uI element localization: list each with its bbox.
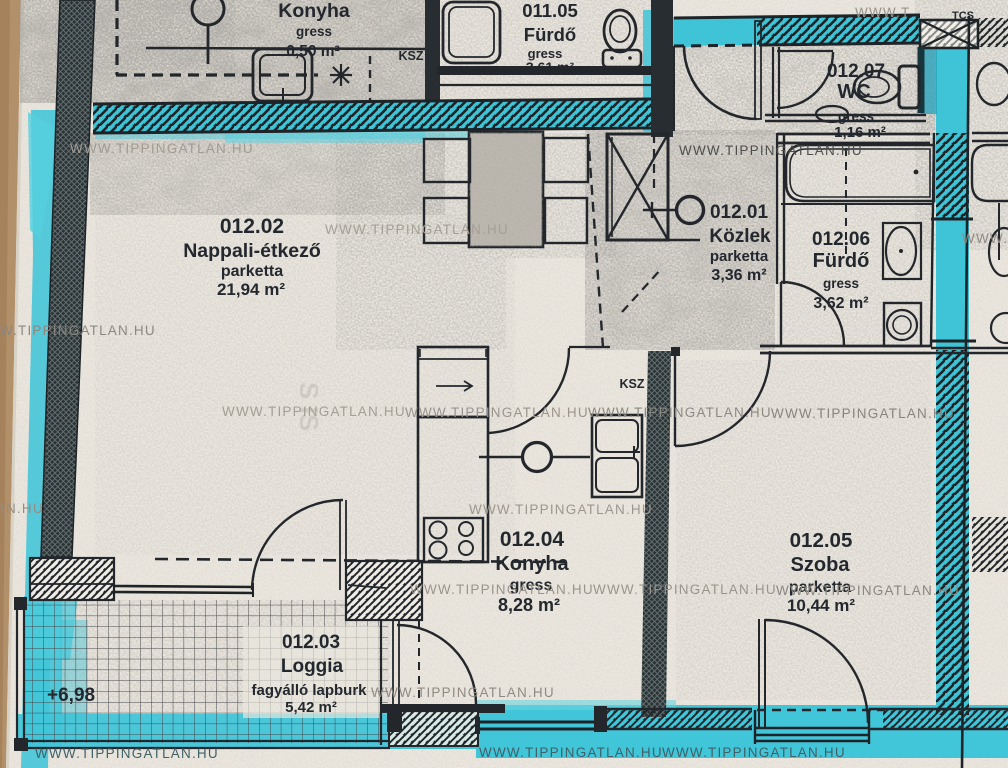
svg-text:KSZ: KSZ: [620, 377, 645, 391]
svg-text:WWW.TIPPINGATLAN.HU: WWW.TIPPINGATLAN.HU: [593, 582, 777, 597]
svg-text:Konyha: Konyha: [495, 553, 569, 575]
svg-text:parketta: parketta: [710, 248, 769, 265]
svg-text:012.06: 012.06: [812, 229, 870, 250]
svg-text:gress: gress: [823, 276, 859, 291]
svg-text:5,42 m²: 5,42 m²: [285, 699, 337, 716]
svg-text:8,28 m²: 8,28 m²: [498, 595, 560, 615]
svg-text:TCS: TCS: [952, 10, 974, 22]
svg-text:fagyálló lapburk: fagyálló lapburk: [251, 682, 367, 699]
svg-text:Loggia: Loggia: [281, 656, 344, 677]
svg-text:WWW.TIPPINGATLAN.HU: WWW.TIPPINGATLAN.HU: [679, 143, 863, 158]
svg-text:012.04: 012.04: [500, 528, 565, 551]
svg-text:WWW.TIPPINGATLAN.HU: WWW.TIPPINGATLAN.HU: [222, 404, 406, 419]
svg-text:WWW.: WWW.: [962, 231, 1008, 246]
svg-text:Szoba: Szoba: [791, 554, 851, 576]
svg-text:WWW.TIPPINGATLAN.HU: WWW.TIPPINGATLAN.HU: [0, 323, 156, 338]
svg-text:KSZ: KSZ: [399, 49, 424, 63]
svg-text:+6,98: +6,98: [47, 685, 95, 706]
svg-text:WWW.T: WWW.T: [855, 5, 910, 20]
svg-text:WWW.TIPPINGATLAN.HU: WWW.TIPPINGATLAN.HU: [469, 502, 653, 517]
svg-text:WWW.TIPPINGATLAN.HU: WWW.TIPPINGATLAN.HU: [0, 501, 44, 516]
svg-text:WWW.TIPPINGATLAN.HU: WWW.TIPPINGATLAN.HU: [771, 406, 955, 421]
svg-text:Konyha: Konyha: [278, 0, 350, 22]
svg-text:parketta: parketta: [221, 263, 283, 280]
svg-text:WWW.TIPPINGATLAN.HU: WWW.TIPPINGATLAN.HU: [662, 745, 846, 760]
svg-text:WWW.TIPPINGATLAN.HU: WWW.TIPPINGATLAN.HU: [776, 583, 960, 598]
svg-text:WWW.TIPPINGATLAN.HU: WWW.TIPPINGATLAN.HU: [70, 141, 254, 156]
svg-text:012.03: 012.03: [282, 632, 340, 653]
svg-text:21,94 m²: 21,94 m²: [217, 280, 285, 299]
svg-text:WWW.TIPPINGATLAN.HU: WWW.TIPPINGATLAN.HU: [325, 222, 509, 237]
svg-text:Nappali-étkező: Nappali-étkező: [183, 240, 321, 262]
svg-text:10,44 m²: 10,44 m²: [787, 596, 855, 615]
svg-text:Közlek: Közlek: [709, 226, 771, 247]
svg-text:3,36 m²: 3,36 m²: [711, 267, 766, 284]
svg-text:1,16 m²: 1,16 m²: [834, 124, 886, 141]
svg-text:WWW.TIPPINGATLAN.HU: WWW.TIPPINGATLAN.HU: [479, 745, 663, 760]
svg-text:0,50 m²: 0,50 m²: [286, 43, 339, 60]
svg-text:WC: WC: [837, 81, 870, 103]
svg-text:Fürdő: Fürdő: [813, 250, 870, 272]
svg-text:011.05: 011.05: [522, 0, 578, 21]
svg-text:012.05: 012.05: [790, 529, 853, 552]
svg-text:WWW.TIPPINGATLAN.HU: WWW.TIPPINGATLAN.HU: [410, 582, 594, 597]
svg-text:WWW.TIPPINGATLAN.HU: WWW.TIPPINGATLAN.HU: [371, 685, 555, 700]
svg-text:gress: gress: [296, 24, 332, 39]
svg-text:012.02: 012.02: [220, 215, 284, 238]
svg-text:WWW.TIPPINGATLAN.HU: WWW.TIPPINGATLAN.HU: [405, 405, 589, 420]
svg-text:Fürdő: Fürdő: [524, 24, 576, 45]
svg-text:012.01: 012.01: [710, 202, 769, 223]
svg-text:WWW.TIPPINGATLAN.HU: WWW.TIPPINGATLAN.HU: [35, 746, 219, 761]
svg-text:gress: gress: [838, 109, 874, 124]
svg-text:012.07: 012.07: [827, 61, 885, 82]
svg-text:3,62 m²: 3,62 m²: [813, 295, 868, 312]
svg-text:WWW.TIPPINGATLAN.HU: WWW.TIPPINGATLAN.HU: [588, 405, 772, 420]
